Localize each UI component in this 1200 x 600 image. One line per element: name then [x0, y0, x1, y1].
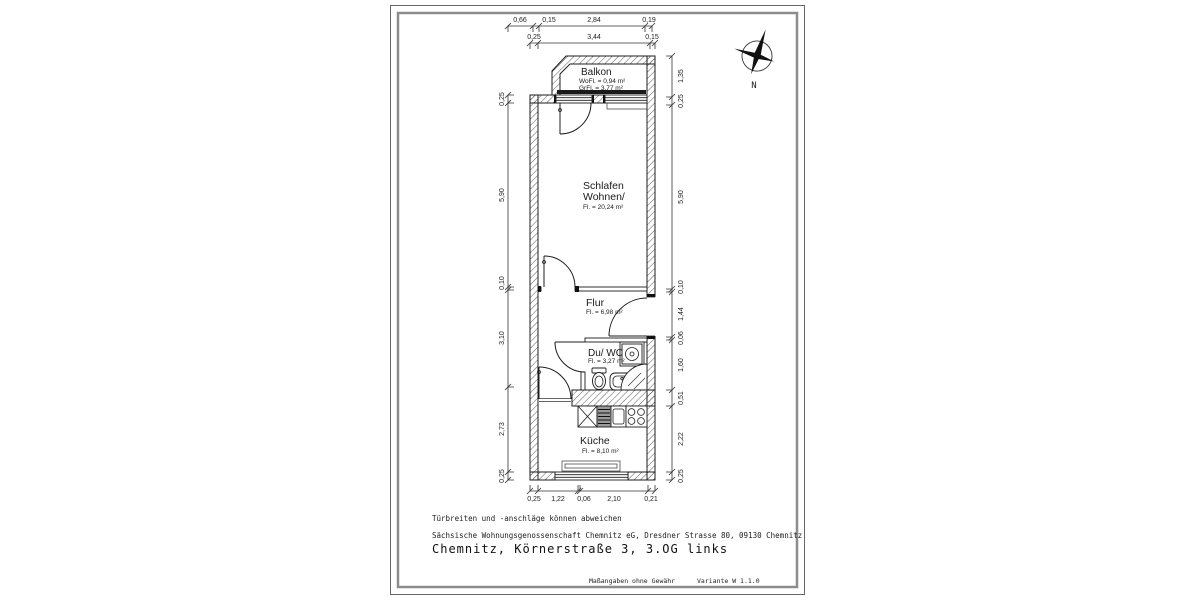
dim-right: 1,35 0,25 5,90 0,10 1,44 0,06 1,60 0,51 … [666, 53, 685, 483]
dim-label: 3,10 [499, 331, 506, 345]
entrance-opening [646, 297, 656, 336]
dim-label: 0,25 [499, 469, 506, 483]
dim-label: 0,06 [577, 496, 591, 503]
dim-label: 0,66 [513, 17, 527, 24]
balkon-label: Balkon [581, 67, 612, 78]
bath-door [555, 342, 585, 372]
dim-label: 0,19 [642, 17, 656, 24]
floorplan: Balkon WoFl. = 0,94 m² GrFl. = 3,77 m² S… [499, 17, 685, 503]
dim-label: 0,10 [499, 276, 506, 290]
balcony-door [559, 103, 592, 134]
radiator-symbol [562, 461, 620, 471]
dim-label: 1,35 [678, 69, 685, 83]
bedroom-door [543, 256, 576, 287]
kitchen-label: Küche [580, 435, 610, 447]
dim-label: 2,22 [678, 432, 685, 446]
company-text: Sächsische Wohnungsgenossenschaft Chemni… [432, 531, 802, 540]
hall-label: Flur [586, 297, 605, 309]
dim-label: 0,25 [527, 496, 541, 503]
hall-area: Fl. = 6,98 m² [586, 309, 623, 316]
balkon-grfl: GrFl. = 3,77 m² [579, 85, 624, 92]
compass-rose: N [728, 22, 782, 91]
drainer-symbol [597, 406, 611, 427]
dim-label: 2,10 [607, 496, 621, 503]
bedroom-window [603, 95, 647, 109]
floorplan-sheet: Balkon WoFl. = 0,94 m² GrFl. = 3,77 m² S… [0, 0, 1200, 600]
dim-label: 0,51 [678, 391, 685, 405]
dim-label: 0,25 [678, 469, 685, 483]
dim-label: 1,44 [678, 307, 685, 321]
address-text: Chemnitz, Körnerstraße 3, 3.OG links [432, 542, 728, 556]
kitchen-door [538, 367, 572, 399]
dim-label: 0,25 [678, 94, 685, 108]
bedroom-label-2: Wohnen/ [583, 191, 625, 203]
footer-note-text: Maßangaben ohne Gewähr [589, 577, 675, 585]
dim-label: 0,15 [645, 34, 659, 41]
balkon-wofl: WoFl. = 0,94 m² [579, 78, 626, 85]
dim-label: 5,90 [499, 188, 506, 202]
toilet-symbol [592, 368, 606, 390]
dim-label: 0,25 [499, 92, 506, 106]
kitchen-window [555, 461, 628, 480]
dim-top-row1: 0,66 0,15 2,84 0,19 [505, 17, 656, 32]
dim-label: 0,21 [644, 496, 658, 503]
dim-label: 0,06 [678, 331, 685, 345]
fridge-symbol [578, 406, 597, 427]
title-block: Türbreiten und -anschläge können abweich… [432, 514, 802, 585]
bath-area: Fl. = 3,27 m² [588, 358, 625, 365]
dim-label: 2,84 [587, 17, 601, 24]
window-sill [607, 103, 647, 109]
dim-label: 0,15 [542, 17, 556, 24]
dim-left: 0,25 5,90 0,10 3,10 2,73 0,25 [499, 92, 514, 483]
dim-label: 0,10 [678, 280, 685, 294]
dim-label: 1,22 [551, 496, 565, 503]
disclaimer-text: Türbreiten und -anschläge können abweich… [432, 514, 622, 523]
dim-label: 0,25 [527, 34, 541, 41]
stove-symbol [626, 406, 647, 427]
variant-text: Variante W 1.1.0 [697, 577, 760, 585]
shower-symbol [621, 364, 647, 390]
kitchen-counter [578, 406, 647, 427]
kitchen-sink-symbol [611, 406, 626, 427]
dim-label: 2,73 [499, 422, 506, 436]
north-label: N [751, 81, 756, 91]
bedroom-area: Fl. = 20,24 m² [583, 204, 624, 211]
kitchen-area: Fl. = 8,10 m² [582, 448, 619, 455]
dim-label: 3,44 [587, 34, 601, 41]
dim-label: 1,60 [678, 358, 685, 372]
dim-label: 5,90 [678, 190, 685, 204]
dim-bottom: 0,25 1,22 0,06 2,10 0,21 [527, 485, 658, 503]
dim-top-row2: 0,25 3,44 0,15 [527, 34, 659, 49]
